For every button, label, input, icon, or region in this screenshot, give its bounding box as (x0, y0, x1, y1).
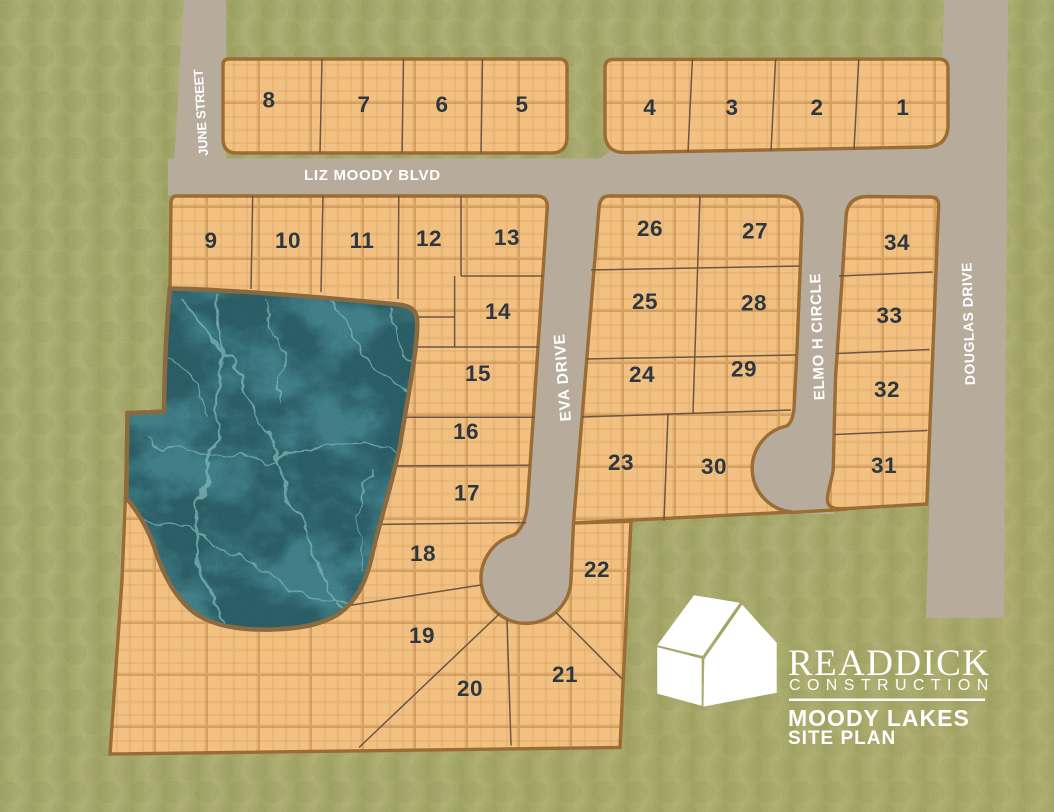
svg-text:9: 9 (204, 228, 217, 253)
svg-text:12: 12 (416, 226, 442, 251)
svg-text:3: 3 (725, 95, 738, 120)
svg-text:7: 7 (357, 92, 370, 117)
svg-text:1: 1 (896, 95, 909, 120)
svg-text:4: 4 (643, 95, 656, 120)
svg-text:15: 15 (465, 361, 491, 386)
svg-text:21: 21 (552, 662, 578, 687)
svg-text:24: 24 (629, 362, 655, 387)
svg-text:27: 27 (742, 219, 768, 244)
svg-text:20: 20 (457, 676, 483, 701)
svg-text:34: 34 (884, 230, 910, 255)
svg-text:32: 32 (874, 377, 900, 402)
svg-text:CONSTRUCTION: CONSTRUCTION (789, 677, 995, 694)
svg-text:LIZ MOODY BLVD: LIZ MOODY BLVD (304, 167, 441, 184)
svg-text:SITE PLAN: SITE PLAN (788, 728, 896, 749)
svg-text:25: 25 (632, 289, 658, 314)
svg-text:31: 31 (871, 453, 897, 478)
svg-text:16: 16 (453, 419, 479, 444)
svg-text:29: 29 (731, 357, 757, 382)
svg-text:26: 26 (637, 216, 663, 241)
svg-text:14: 14 (485, 299, 511, 324)
svg-text:13: 13 (494, 225, 520, 250)
svg-text:28: 28 (741, 291, 767, 316)
svg-text:18: 18 (410, 541, 436, 566)
svg-text:8: 8 (262, 88, 275, 113)
svg-text:22: 22 (584, 557, 610, 582)
svg-text:10: 10 (275, 228, 301, 253)
svg-text:33: 33 (876, 303, 902, 328)
svg-text:6: 6 (435, 92, 448, 117)
svg-text:23: 23 (608, 450, 634, 475)
svg-text:5: 5 (515, 92, 528, 117)
svg-text:11: 11 (350, 228, 375, 253)
svg-text:2: 2 (810, 95, 823, 120)
svg-text:17: 17 (454, 481, 480, 506)
svg-text:19: 19 (409, 623, 435, 648)
svg-text:30: 30 (701, 454, 727, 479)
